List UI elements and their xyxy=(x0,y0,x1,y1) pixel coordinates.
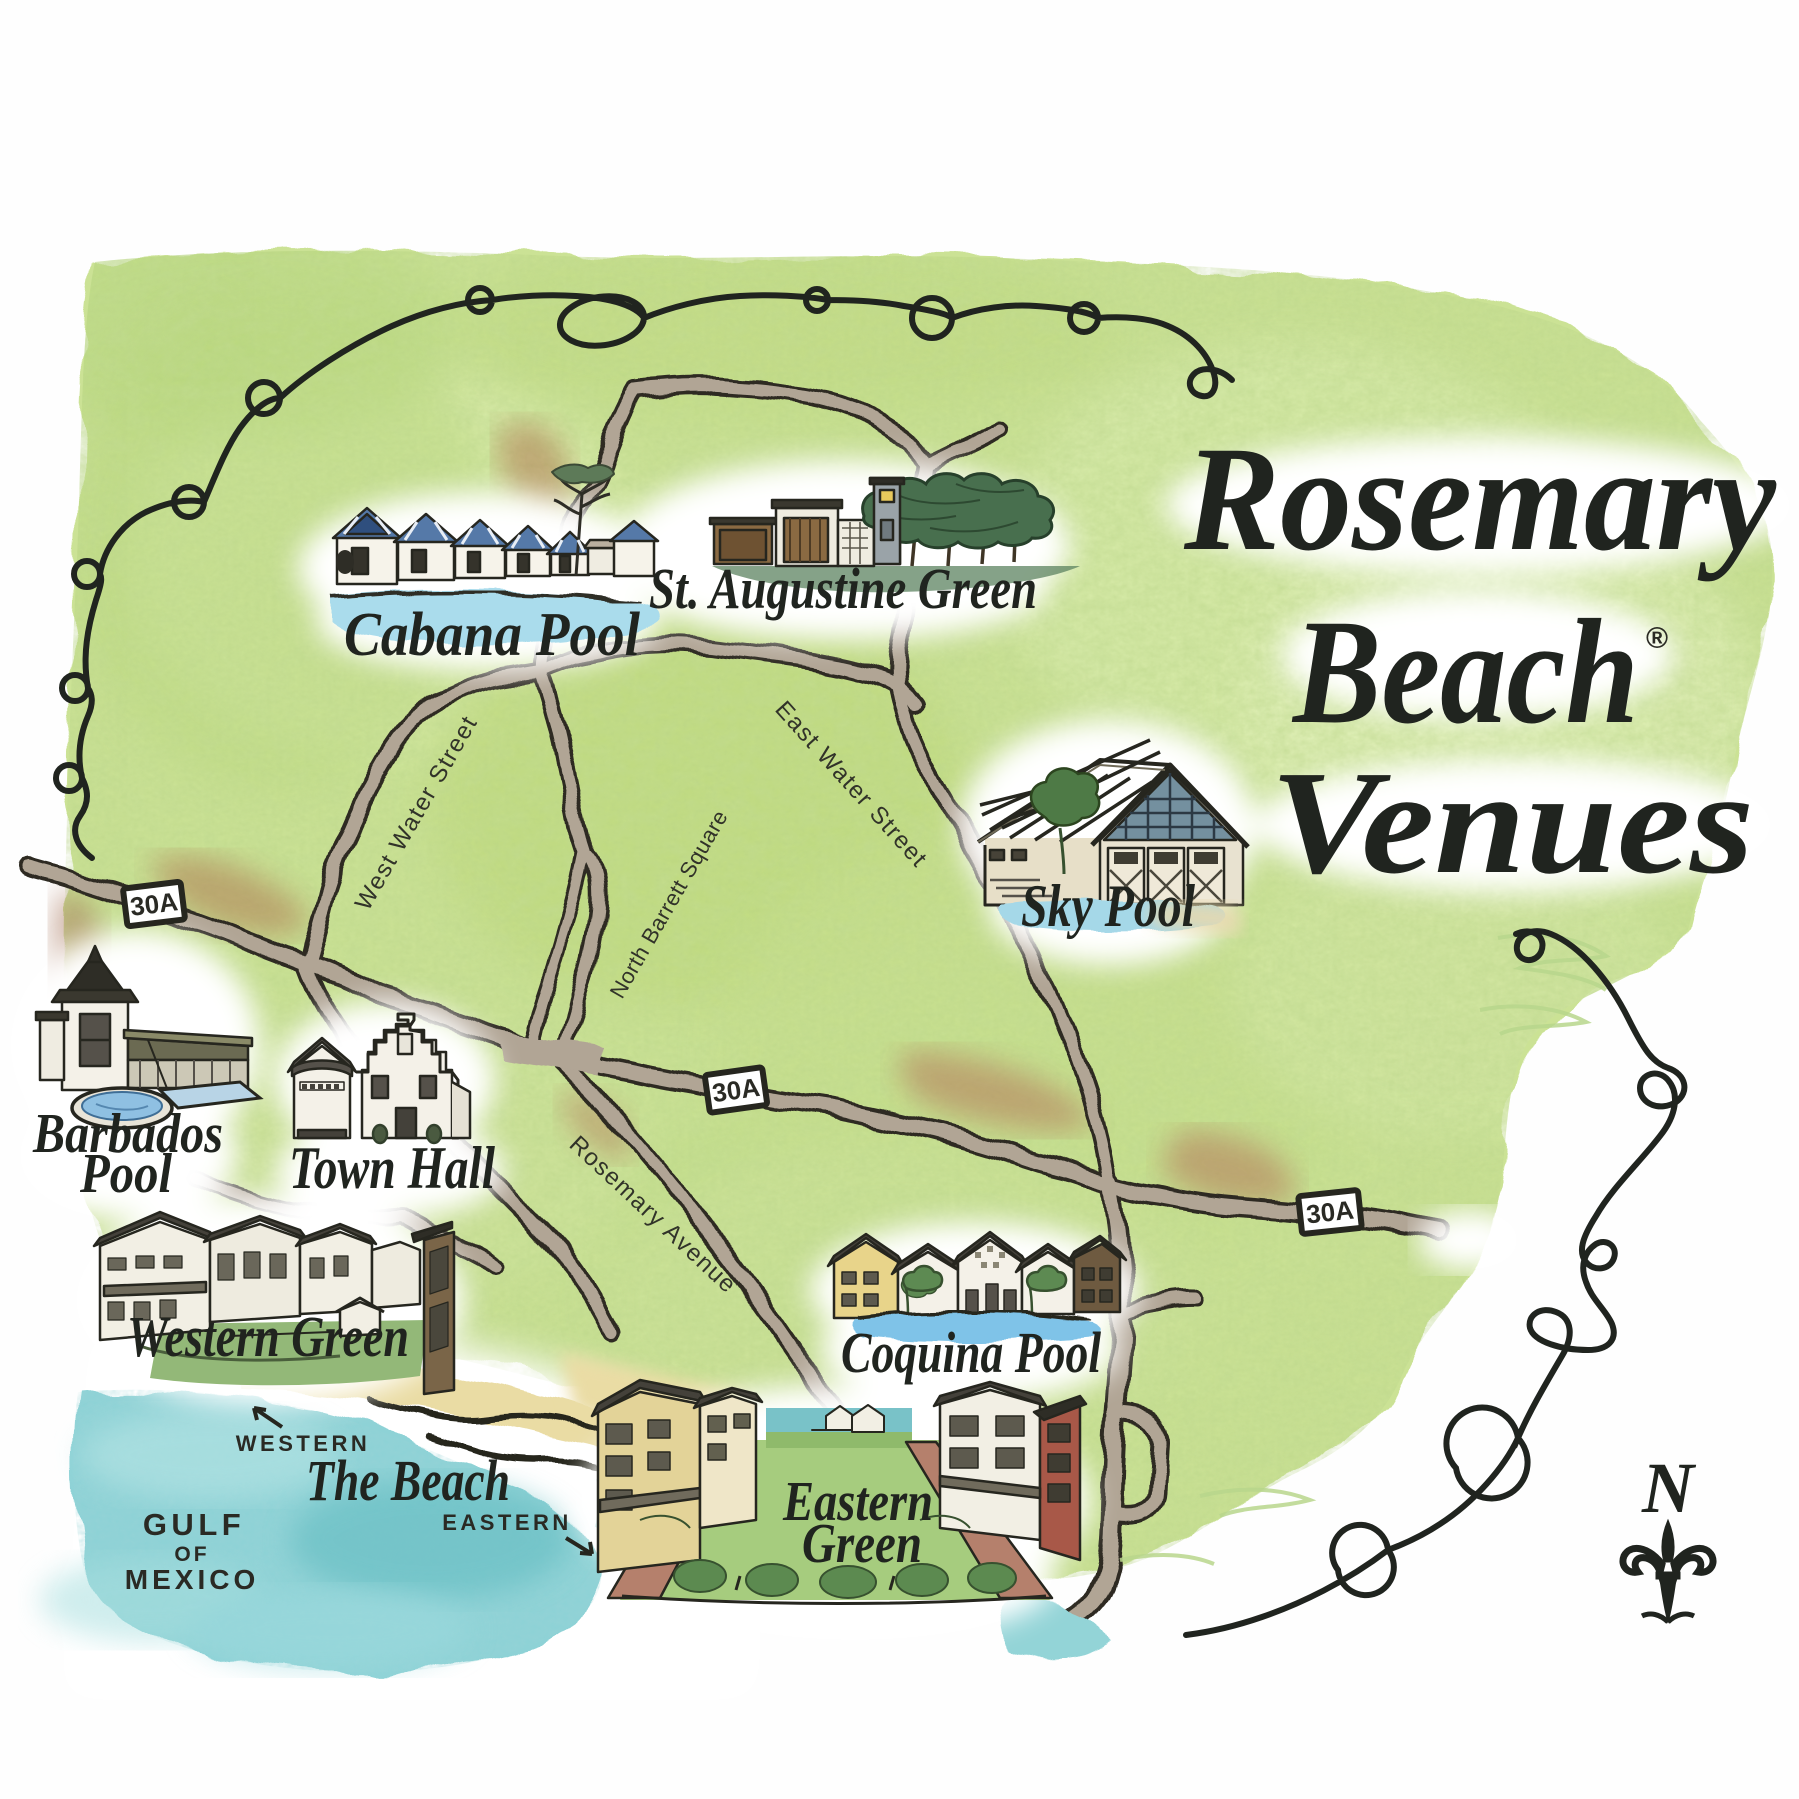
svg-text:Venues: Venues xyxy=(1270,741,1754,905)
svg-text:Green: Green xyxy=(802,1513,922,1575)
svg-text:St. Augustine Green: St. Augustine Green xyxy=(649,556,1037,621)
svg-text:Town Hall: Town Hall xyxy=(289,1135,495,1201)
svg-text:MEXICO: MEXICO xyxy=(125,1564,259,1595)
svg-text:N: N xyxy=(1641,1448,1697,1528)
svg-text:30A: 30A xyxy=(128,886,179,922)
svg-text:Rosemary: Rosemary xyxy=(1183,416,1777,582)
svg-text:GULF: GULF xyxy=(143,1507,245,1542)
svg-text:OF: OF xyxy=(174,1543,209,1566)
svg-text:Coquina Pool: Coquina Pool xyxy=(841,1320,1102,1385)
svg-text:WESTERN: WESTERN xyxy=(236,1431,371,1456)
svg-text:®: ® xyxy=(1646,622,1668,655)
svg-text:Pool: Pool xyxy=(79,1143,172,1205)
svg-text:Sky Pool: Sky Pool xyxy=(1021,873,1195,939)
svg-text:EASTERN: EASTERN xyxy=(442,1510,572,1535)
svg-text:Cabana Pool: Cabana Pool xyxy=(344,601,641,669)
svg-text:30A: 30A xyxy=(1305,1195,1356,1230)
svg-text:Western Green: Western Green xyxy=(127,1304,409,1369)
svg-text:Beach: Beach xyxy=(1291,589,1639,755)
svg-text:The Beach: The Beach xyxy=(306,1448,510,1513)
